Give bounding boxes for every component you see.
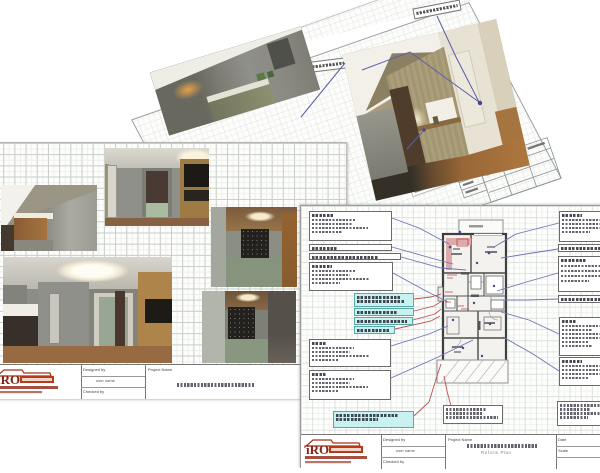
svg-text:iRO: iRO	[306, 442, 329, 457]
svg-text:iRO: iRO	[0, 372, 20, 387]
